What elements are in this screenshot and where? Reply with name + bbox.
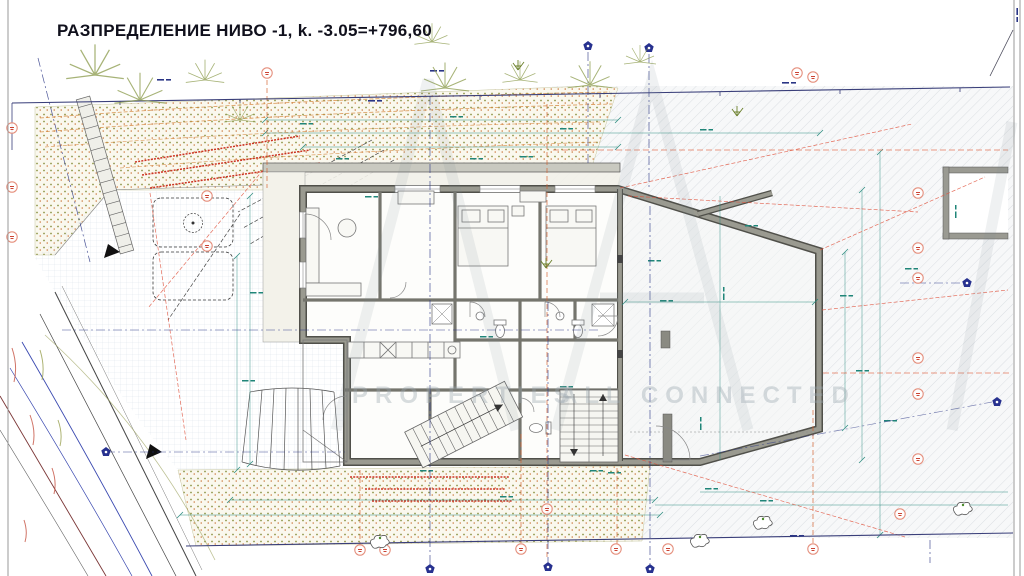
floor-plan-canvas: PROPERTIES ALL CONNECTED РАЗПРЕДЕЛЕНИЕ Н…: [0, 0, 1024, 576]
floor-plan-sheet: PROPERTIES ALL CONNECTED РАЗПРЕДЕЛЕНИЕ Н…: [0, 0, 1024, 576]
watermark-text-right: ALL CONNECTED: [560, 382, 856, 409]
porch-strip: [263, 172, 305, 342]
drawing-title: РАЗПРЕДЕЛЕНИЕ НИВО -1, k. -3.05=+796,60: [57, 21, 432, 40]
retaining-wall: [263, 163, 620, 172]
watermark-text-left: PROPERTIES: [352, 382, 577, 409]
terrain-lower-hatch: [178, 466, 650, 546]
garage-column: [663, 414, 672, 462]
garage-column: [661, 331, 670, 348]
border-vertical-label: [1016, 8, 1018, 22]
